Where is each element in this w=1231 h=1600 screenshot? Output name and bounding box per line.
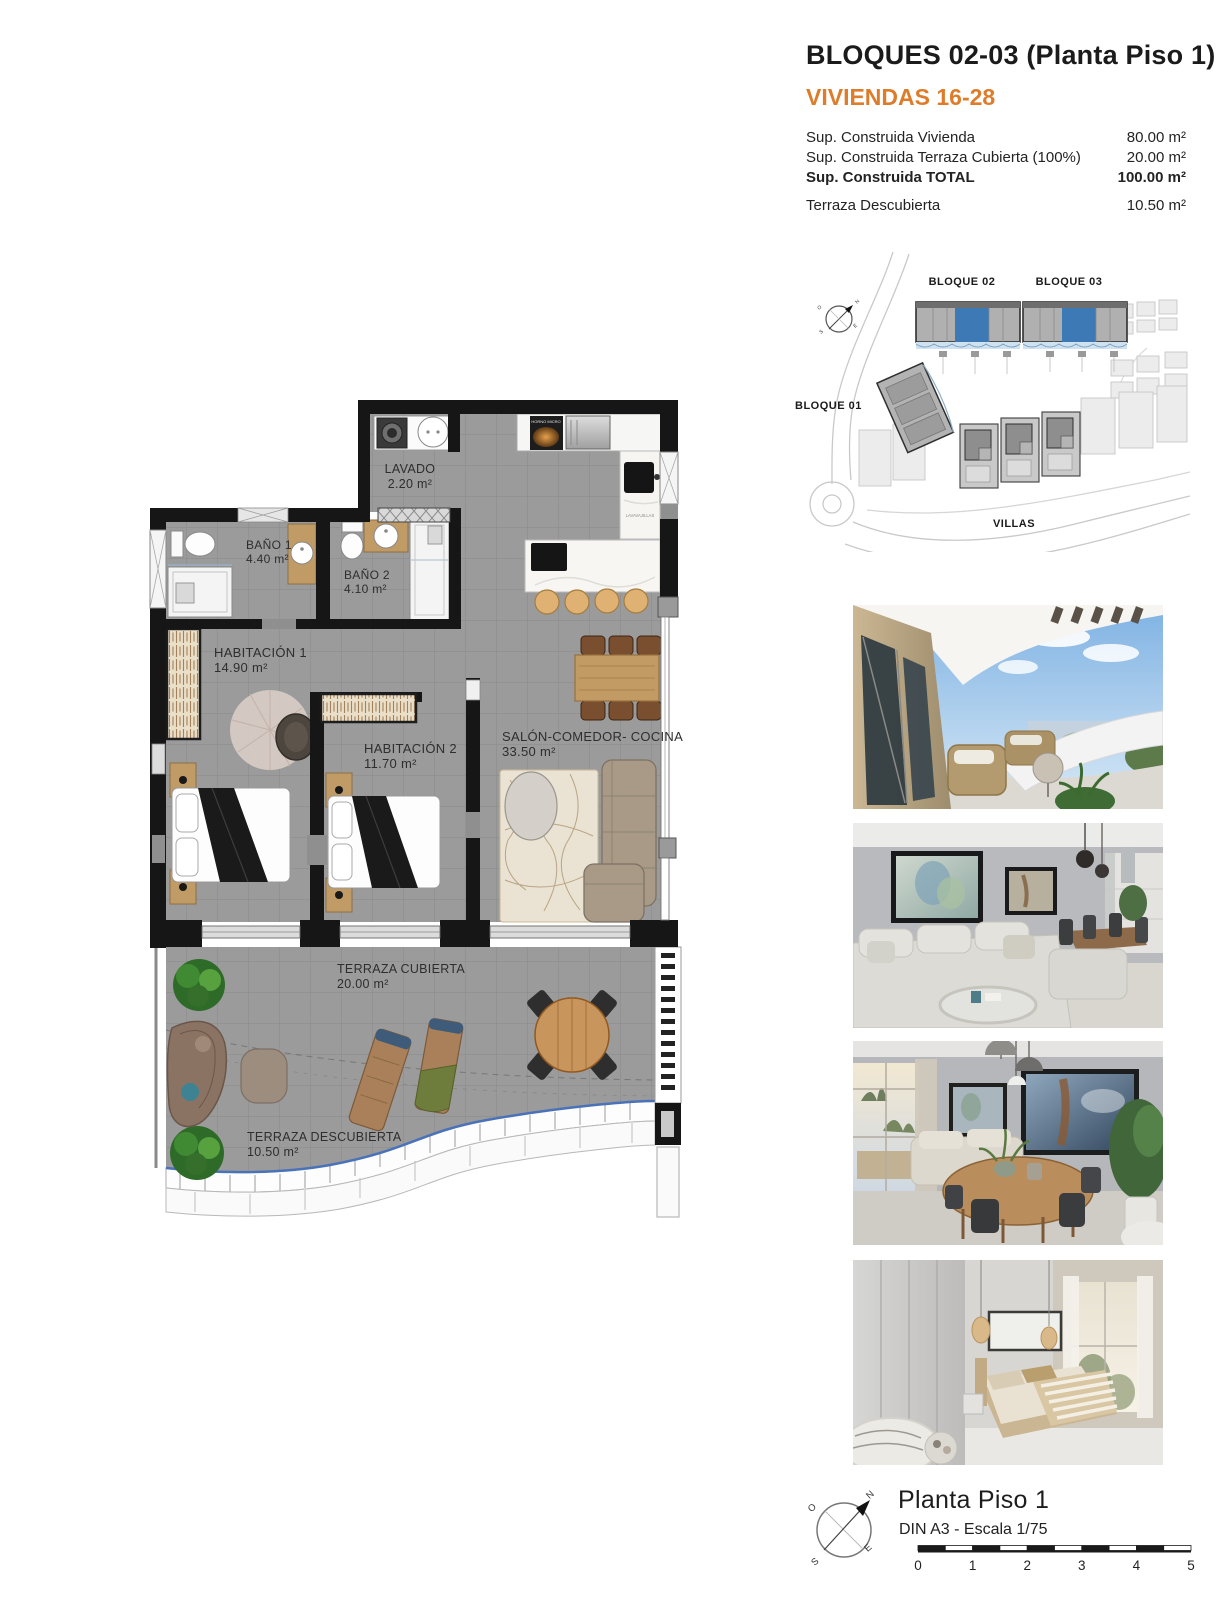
room-label-terraza-descubierta: TERRAZA DESCUBIERTA [247,1130,402,1144]
svg-text:HORNO MICRO: HORNO MICRO [531,419,560,424]
row-label: Terraza Descubierta [806,196,940,216]
kitchen-sink-icon [624,462,654,493]
pouf [241,1049,287,1103]
scale-tick: 5 [1187,1558,1195,1573]
table-row: Terraza Descubierta 10.50 m² [806,196,1186,216]
svg-text:S: S [818,328,825,335]
scale-tick: 4 [1133,1558,1141,1573]
svg-text:E: E [852,322,859,329]
dining-set [575,636,661,720]
table-row: Sup. Construida Vivienda 80.00 m² [806,128,1186,148]
plant-icon [170,1126,224,1180]
room-area-hab2: 11.70 m² [364,756,417,771]
room-label-bano2: BAÑO 2 [344,568,390,582]
dining-room-photo [853,1041,1163,1245]
wardrobe-icon [321,694,416,722]
bathroom-vanity [364,520,408,552]
room-area-lavado: 2.20 m² [388,477,432,491]
table-row-total: Sup. Construida TOTAL 100.00 m² [806,168,1186,188]
laundry-sink [418,417,448,447]
row-label: Sup. Construida TOTAL [806,168,975,188]
floor-plan: HORNO MICRO LAVAVAJILLAS [130,385,690,1245]
svg-text:N: N [854,298,861,305]
room-label-terraza-cubierta: TERRAZA CUBIERTA [337,962,465,976]
door-sill [262,619,296,629]
bathroom-vanity [288,524,316,584]
site-compass-icon: N O S E [816,298,861,335]
page-subtitle: VIVIENDAS 16-28 [806,84,995,111]
label-villas: VILLAS [993,518,1035,530]
room-label-hab1: HABITACIÓN 1 [214,645,307,660]
footer-title: Planta Piso 1 [898,1486,1049,1515]
pergola-louvres [655,947,681,1217]
room-area-bano2: 4.10 m² [344,582,387,596]
room-area-terraza-cubierta: 20.00 m² [337,977,389,991]
svg-text:LAVAVAJILLAS: LAVAVAJILLAS [626,513,655,518]
svg-text:N: N [864,1489,877,1502]
plant-icon [173,959,225,1011]
scale-tick: 0 [914,1558,922,1573]
shower-icon [168,565,232,617]
label-bloque-03: BLOQUE 03 [1036,276,1103,288]
room-area-bano1: 4.40 m² [246,552,289,566]
bloque-02-footprint [916,302,1020,374]
entry-sliding-door [378,508,450,522]
scale-tick: 2 [1023,1558,1031,1573]
page-title: BLOQUES 02-03 (Planta Piso 1) [806,40,1215,71]
room-label-lavado: LAVADO [385,462,436,476]
compass-icon: N O S E [806,1484,884,1576]
svg-text:S: S [809,1556,821,1568]
terrace-photo [853,605,1163,809]
svg-text:O: O [806,1502,819,1515]
area-rug [500,770,598,922]
washing-machine-icon [377,418,407,448]
living-room-photo [853,823,1163,1028]
fridge-icon [566,416,610,449]
highlighted-unit [1062,308,1096,342]
row-value: 80.00 m² [1127,128,1186,148]
highlighted-unit [955,308,989,342]
wardrobe-icon [167,629,200,739]
bedroom-photo [853,1260,1163,1465]
label-bloque-01: BLOQUE 01 [795,400,862,412]
footer-scale-note: DIN A3 - Escala 1/75 [899,1521,1048,1539]
scale-bar: 0 1 2 3 4 5 [899,1538,1209,1580]
site-plan: N O S E BLOQUE 02 BLOQUE 03 BLOQUE 01 VI… [775,252,1190,552]
row-value: 10.50 m² [1127,196,1186,216]
row-value: 20.00 m² [1127,148,1186,168]
scale-tick: 3 [1078,1558,1086,1573]
room-label-bano1: BAÑO 1 [246,538,292,552]
oven-icon: HORNO MICRO [530,416,563,450]
plan-sheet: BLOQUES 02-03 (Planta Piso 1) VIVIENDAS … [0,0,1231,1600]
villas-plots [960,412,1080,488]
outdoor-dining-set [526,989,619,1082]
room-label-hab2: HABITACIÓN 2 [364,741,457,756]
row-label: Sup. Construida Vivienda [806,128,975,148]
cooktop-icon [531,543,567,571]
table-row: Sup. Construida Terraza Cubierta (100%) … [806,148,1186,168]
toilet-icon [341,522,363,559]
surface-table: Sup. Construida Vivienda 80.00 m² Sup. C… [806,128,1186,216]
scale-tick: 1 [969,1558,977,1573]
room-area-salon: 33.50 m² [502,744,556,759]
room-area-terraza-descubierta: 10.50 m² [247,1145,299,1159]
svg-text:O: O [816,304,823,311]
coffee-table [505,772,557,840]
pillar [307,835,327,865]
label-bloque-02: BLOQUE 02 [929,276,996,288]
row-value: 100.00 m² [1118,168,1186,188]
svg-text:E: E [862,1542,874,1554]
toilet-icon [171,531,215,557]
shower-icon [410,520,449,620]
room-label-salon: SALÓN-COMEDOR- COCINA [502,729,683,744]
row-label: Sup. Construida Terraza Cubierta (100%) [806,148,1081,168]
room-area-hab1: 14.90 m² [214,660,268,675]
